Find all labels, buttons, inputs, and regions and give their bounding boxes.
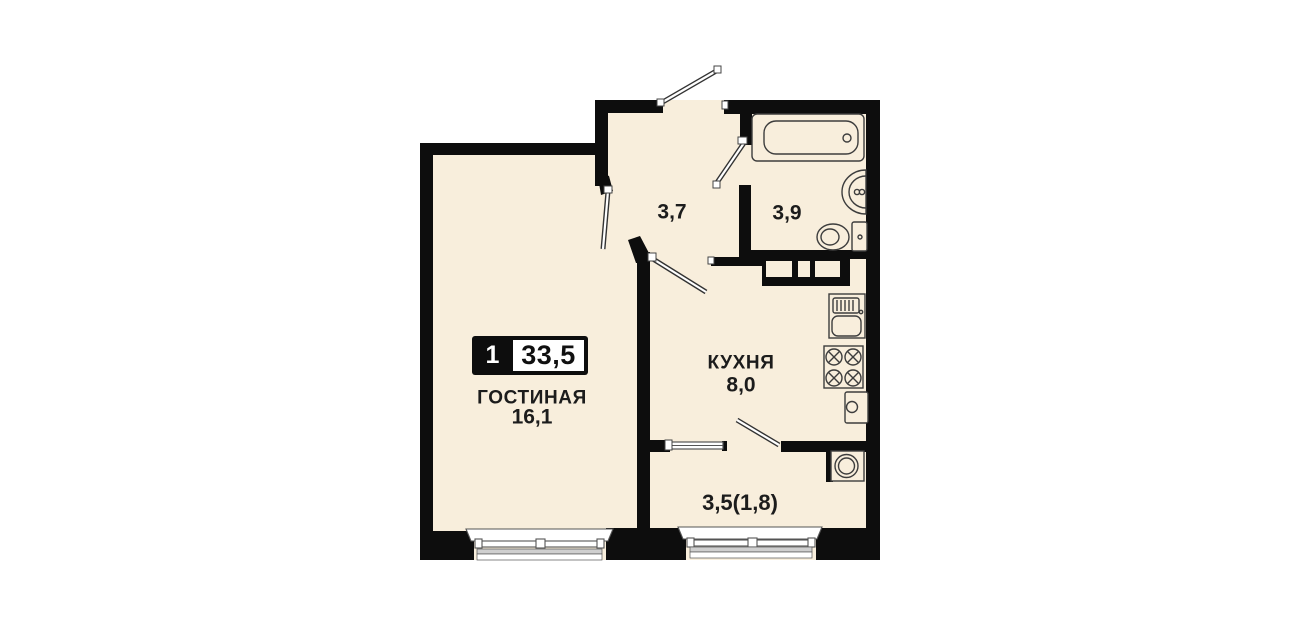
wardrobe-icon [762,259,850,286]
toilet-icon [817,222,867,251]
stove-icon [824,346,863,388]
apartment-badge: 1 33,5 [472,336,588,375]
floor-plan-canvas: 3,7 3,9 КУХНЯ 8,0 ГОСТИНАЯ 16,1 3,5(1,8)… [0,0,1301,630]
window-icon [678,527,822,558]
bathtub-icon [752,114,864,161]
washing-machine-icon [831,451,864,481]
water-heater-icon [845,392,868,423]
kitchen-area-label: 8,0 [726,375,755,396]
window-icon [665,440,723,450]
hallway-area-label: 3,7 [657,202,686,223]
window-icon [466,529,613,560]
living-area-label: 16,1 [512,407,553,428]
badge-total-area: 33,5 [513,340,584,371]
kitchen-sink-icon [829,294,865,338]
balcony-area-label: 3,5(1,8) [702,492,778,514]
kitchen-name-label: КУХНЯ [708,354,775,373]
badge-rooms-count: 1 [472,341,513,370]
bathroom-area-label: 3,9 [772,203,801,224]
floor-plan-drawing [0,0,1301,630]
